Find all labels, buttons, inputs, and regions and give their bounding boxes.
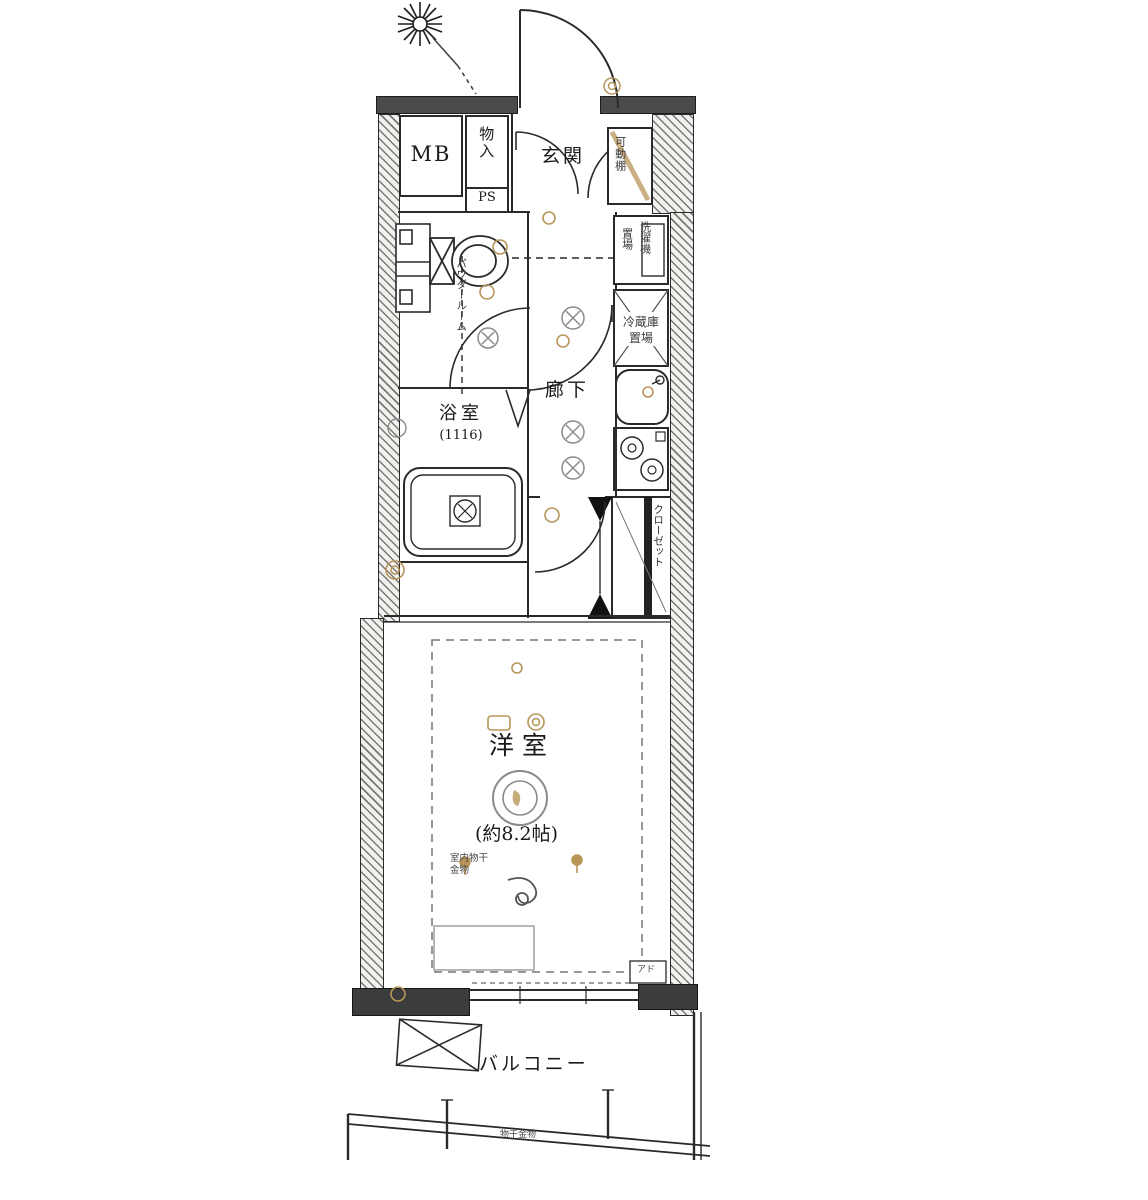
- washer-place-label-2: 置場: [620, 228, 633, 250]
- indoor-drying-label-2: 金物: [450, 866, 469, 877]
- indoor-drying-label-1: 室内物干: [450, 854, 488, 865]
- bedroom-folding-door: [588, 497, 612, 618]
- bedroom-size-label: (約8.2帖): [475, 824, 558, 846]
- hallway-door-swing: [527, 305, 612, 390]
- balcony-drying-label: 物干金物: [500, 1130, 536, 1140]
- fridge-place-label-1: 冷蔵庫: [614, 316, 668, 330]
- doorbell-icon: [604, 78, 620, 94]
- bath-folding-door: [506, 390, 530, 426]
- entrance-door-swing: [520, 10, 618, 108]
- stove-icon: [614, 428, 668, 490]
- closet-label: クローゼット: [652, 504, 664, 567]
- bathroom-size-label: (1116): [420, 429, 502, 444]
- kitchen-sink-icon: [616, 370, 668, 424]
- indoor-drying-hook-icon: [508, 878, 536, 905]
- compass-icon: [398, 2, 476, 94]
- ceiling-light-icon: [493, 771, 547, 825]
- storage-label: 物入: [477, 126, 494, 160]
- escape-hatch-icon: [396, 1019, 481, 1071]
- hallway-label: 廊下: [545, 380, 589, 402]
- meter-box-label: MB: [400, 142, 462, 166]
- balcony-label: バルコニー: [479, 1054, 589, 1076]
- bath-fitting-icon: [388, 419, 406, 437]
- washer-place-label-1: 洗濯機: [638, 221, 651, 254]
- bedroom-label: 洋室: [489, 732, 555, 761]
- bathtub-icon: [404, 468, 522, 556]
- fridge-place-label-2: 置場: [614, 332, 668, 346]
- bedroom-window: [468, 983, 638, 1004]
- furniture-outline: [434, 926, 534, 970]
- toilet-icon: [430, 236, 508, 286]
- doorbell-icon-inner: [609, 83, 616, 90]
- bathroom-label: 浴室: [420, 404, 502, 425]
- bedroom-dashed-area: [432, 640, 642, 972]
- movable-shelf-label: 可動棚: [613, 136, 626, 172]
- floor-plan: MB 物入 PS 玄関 可動棚 洗濯機 置場 冷蔵庫 置場 パウダールーム 廊下…: [0, 0, 1148, 1200]
- window-note-label: アド: [637, 965, 655, 975]
- entrance-label: 玄関: [541, 146, 585, 168]
- floor-plan-linework: [0, 0, 1148, 1200]
- powder-room-label: パウダールーム: [455, 258, 467, 332]
- pipe-space-label: PS: [466, 191, 508, 206]
- washing-machine-symbol: [396, 224, 430, 312]
